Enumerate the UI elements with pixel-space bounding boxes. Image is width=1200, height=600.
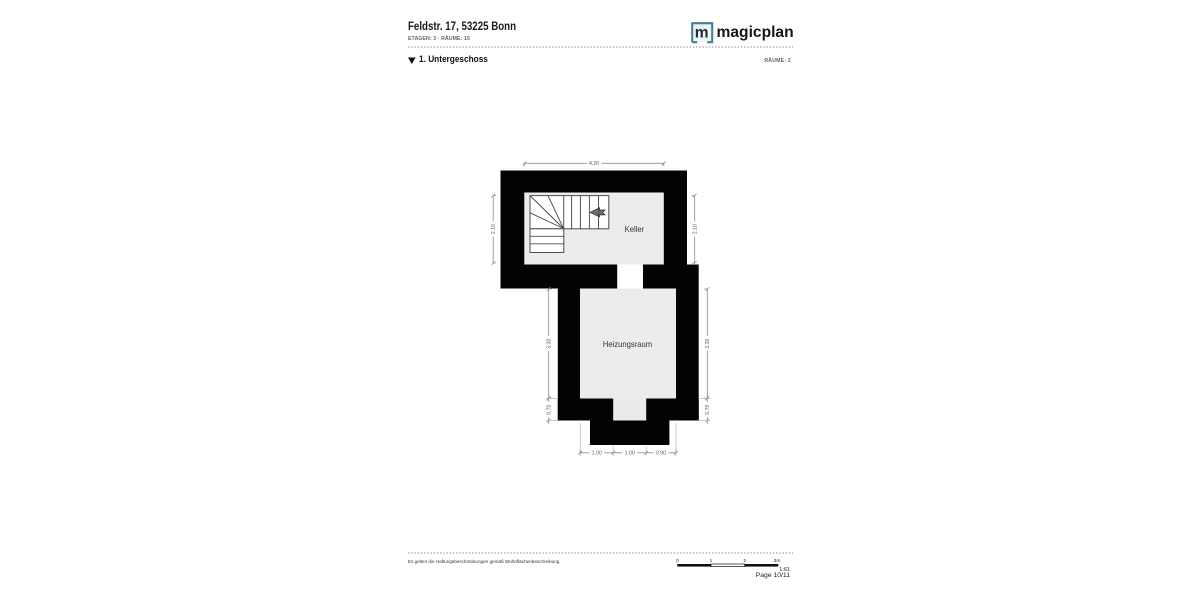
svg-text:3.30: 3.30 — [705, 339, 711, 349]
svg-text:2.10: 2.10 — [693, 224, 699, 234]
svg-text:3.30: 3.30 — [547, 339, 553, 349]
svg-text:Heizungsraum: Heizungsraum — [603, 340, 652, 350]
svg-text:0.90: 0.90 — [656, 451, 666, 457]
svg-text:1.00: 1.00 — [592, 451, 602, 457]
svg-text:1.00: 1.00 — [625, 451, 635, 457]
svg-text:2.10: 2.10 — [491, 224, 497, 234]
svg-text:4.20: 4.20 — [589, 161, 599, 167]
svg-text:1: 1 — [710, 558, 713, 564]
svg-text:Keller: Keller — [625, 224, 645, 234]
svg-text:0.70: 0.70 — [705, 405, 711, 415]
svg-text:0.70: 0.70 — [547, 405, 553, 415]
svg-text:2: 2 — [743, 558, 746, 564]
svg-text:0: 0 — [676, 558, 679, 564]
svg-text:3m: 3m — [774, 558, 781, 564]
